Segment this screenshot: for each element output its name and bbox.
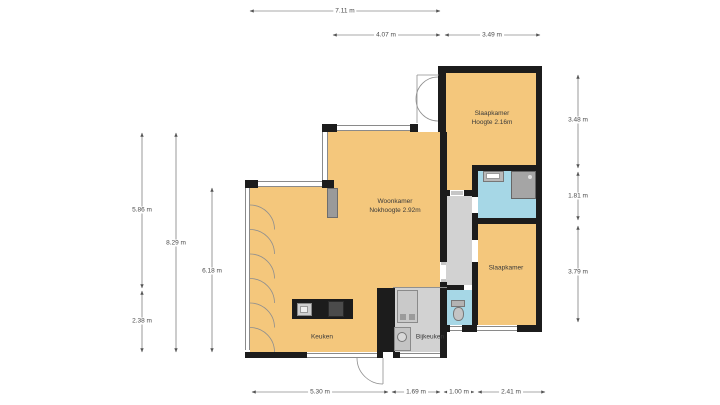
wall-segment (410, 124, 418, 132)
toilet-door-opening (464, 285, 472, 290)
wall-segment (438, 66, 542, 73)
door-leaf-mark (441, 279, 446, 282)
kitchen-sink-basin (300, 306, 308, 313)
room-name: Bijkeuken (416, 334, 444, 343)
window (337, 125, 410, 131)
dim-label-top-right-part: 3.49 m (480, 32, 504, 39)
window (245, 188, 250, 350)
dim-label-bottom-kitchen: 5.30 m (308, 389, 332, 396)
wall-segment (446, 190, 450, 196)
shower (511, 171, 536, 199)
dim-label-top-left-part: 4.07 m (374, 32, 398, 39)
window (400, 353, 440, 358)
shower-drain (528, 175, 532, 179)
window (322, 132, 328, 180)
entrance-door-arcs (416, 75, 439, 123)
dim-label-left-upper: 5.86 m (130, 207, 154, 214)
room-sublabel: Hoogte 2.16m (472, 119, 513, 128)
wall-segment (393, 352, 400, 358)
room-label-slaapkamer-2: Slaapkamer (489, 265, 524, 274)
wall-segment (536, 73, 542, 332)
wall-segment (438, 124, 446, 132)
dim-label-right-bathroom: 1.81 m (566, 193, 590, 200)
wall-segment (464, 190, 472, 196)
window (477, 326, 517, 331)
utility-knob (400, 314, 406, 320)
entrance-door-opening (418, 124, 438, 132)
window (307, 353, 377, 358)
bedroom-2-floor (478, 224, 536, 325)
wall-segment (517, 325, 542, 332)
dim-label-bottom-hall: 1.00 m (447, 389, 471, 396)
room-name: Keuken (311, 334, 333, 343)
room-label-bijkeuken: Bijkeuken (416, 334, 444, 343)
dim-label-right-bedroom2: 3.79 m (566, 269, 590, 276)
utility-threshold-line (393, 287, 447, 288)
window (450, 326, 462, 331)
dim-label-top-width: 7.11 m (333, 8, 356, 15)
room-label-keuken: Keuken (311, 334, 333, 343)
bedroom-1-floor-ext (446, 165, 472, 190)
room-name: Woonkamer (369, 198, 420, 207)
room-sublabel: Nokhoogte 2.92m (369, 207, 420, 216)
room-label-slaapkamer-1: Slaapkamer Hoogte 2.16m (472, 110, 513, 128)
door-leaf-mark (441, 262, 446, 265)
utility-knob (409, 314, 415, 320)
dim-label-left-total: 8.29 m (164, 240, 188, 247)
wall-segment (440, 132, 447, 262)
dim-label-right-bedroom1: 3.48 m (566, 117, 590, 124)
washbasin-bowl (486, 173, 500, 179)
washing-machine-door (397, 332, 407, 342)
wall-segment (322, 124, 337, 132)
wall-segment (245, 352, 307, 358)
dim-label-left-lower: 2.38 m (130, 318, 154, 325)
floor-plan: Woonkamer Nokhoogte 2.92m Slaapkamer Hoo… (0, 0, 720, 405)
utility-door-opening (383, 352, 393, 358)
room-label-woonkamer: Woonkamer Nokhoogte 2.92m (369, 198, 420, 216)
wall-segment (245, 180, 258, 188)
wall-segment (472, 218, 536, 224)
wall-segment (472, 262, 478, 325)
dim-label-left-kitchen: 6.18 m (200, 268, 224, 275)
room-name: Slaapkamer (472, 110, 513, 119)
wall-segment (377, 288, 395, 352)
wall-segment (462, 325, 477, 332)
room-name: Slaapkamer (489, 265, 524, 274)
cooktop (328, 301, 344, 317)
window (258, 181, 322, 187)
dim-label-bottom-utility: 1.69 m (404, 389, 428, 396)
dim-label-bottom-bedroom2: 2.41 m (499, 389, 523, 396)
utility-door-arc (357, 358, 383, 384)
toilet-bowl (453, 307, 464, 321)
wall-segment (438, 73, 446, 124)
wall-segment (440, 352, 447, 358)
wall-segment (446, 285, 464, 290)
door-leaf-mark (451, 191, 463, 195)
toilet-tank (451, 300, 465, 307)
chimney-block (327, 188, 338, 218)
kitchen-floor (250, 187, 328, 352)
wall-segment (322, 180, 334, 188)
